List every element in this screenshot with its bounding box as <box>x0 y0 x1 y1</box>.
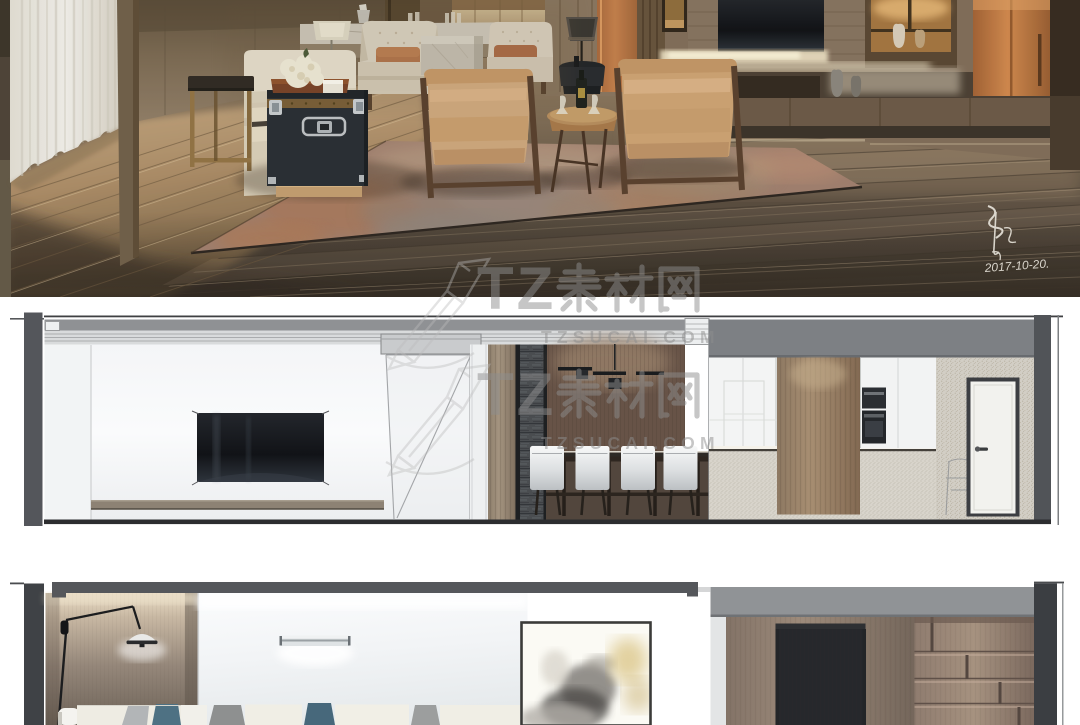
svg-text:TZ: TZ <box>477 361 556 428</box>
svg-text:TZSUCAI.COM: TZSUCAI.COM <box>541 327 720 347</box>
svg-text:TZ: TZ <box>477 255 556 322</box>
svg-text:TZSUCAI.COM: TZSUCAI.COM <box>541 433 720 453</box>
